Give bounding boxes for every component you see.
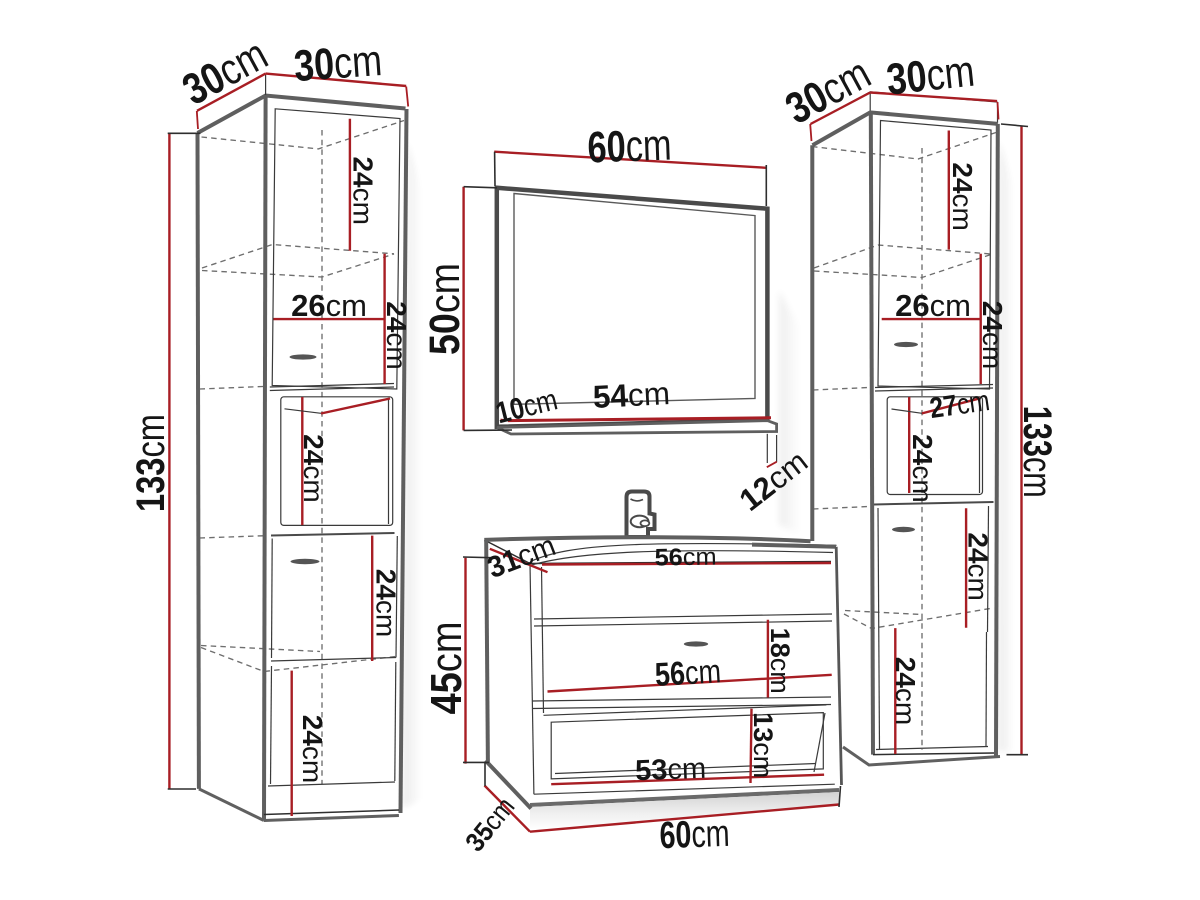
- svg-text:60cm: 60cm: [587, 121, 673, 173]
- svg-text:24cm: 24cm: [947, 162, 978, 230]
- svg-text:24cm: 24cm: [907, 434, 938, 502]
- svg-text:45cm: 45cm: [422, 622, 471, 715]
- svg-text:30cm: 30cm: [292, 36, 383, 91]
- svg-text:26cm: 26cm: [895, 288, 971, 323]
- svg-text:24cm: 24cm: [371, 569, 402, 637]
- svg-text:26cm: 26cm: [291, 288, 367, 323]
- svg-text:56cm: 56cm: [654, 652, 722, 693]
- svg-text:54cm: 54cm: [592, 375, 671, 415]
- svg-text:133cm: 133cm: [129, 414, 173, 512]
- svg-text:24cm: 24cm: [890, 657, 921, 725]
- svg-text:24cm: 24cm: [297, 715, 328, 783]
- svg-text:24cm: 24cm: [381, 301, 412, 369]
- svg-text:24cm: 24cm: [977, 301, 1008, 369]
- svg-text:53cm: 53cm: [635, 753, 707, 787]
- svg-text:24cm: 24cm: [347, 156, 378, 224]
- svg-text:60cm: 60cm: [659, 813, 730, 857]
- svg-text:50cm: 50cm: [421, 263, 469, 355]
- svg-text:24cm: 24cm: [963, 532, 994, 600]
- svg-text:56cm: 56cm: [654, 543, 716, 571]
- svg-text:30cm: 30cm: [884, 47, 977, 105]
- svg-text:18cm: 18cm: [765, 628, 795, 694]
- svg-text:133cm: 133cm: [1015, 406, 1059, 498]
- svg-text:24cm: 24cm: [298, 434, 329, 502]
- svg-text:13cm: 13cm: [748, 712, 778, 778]
